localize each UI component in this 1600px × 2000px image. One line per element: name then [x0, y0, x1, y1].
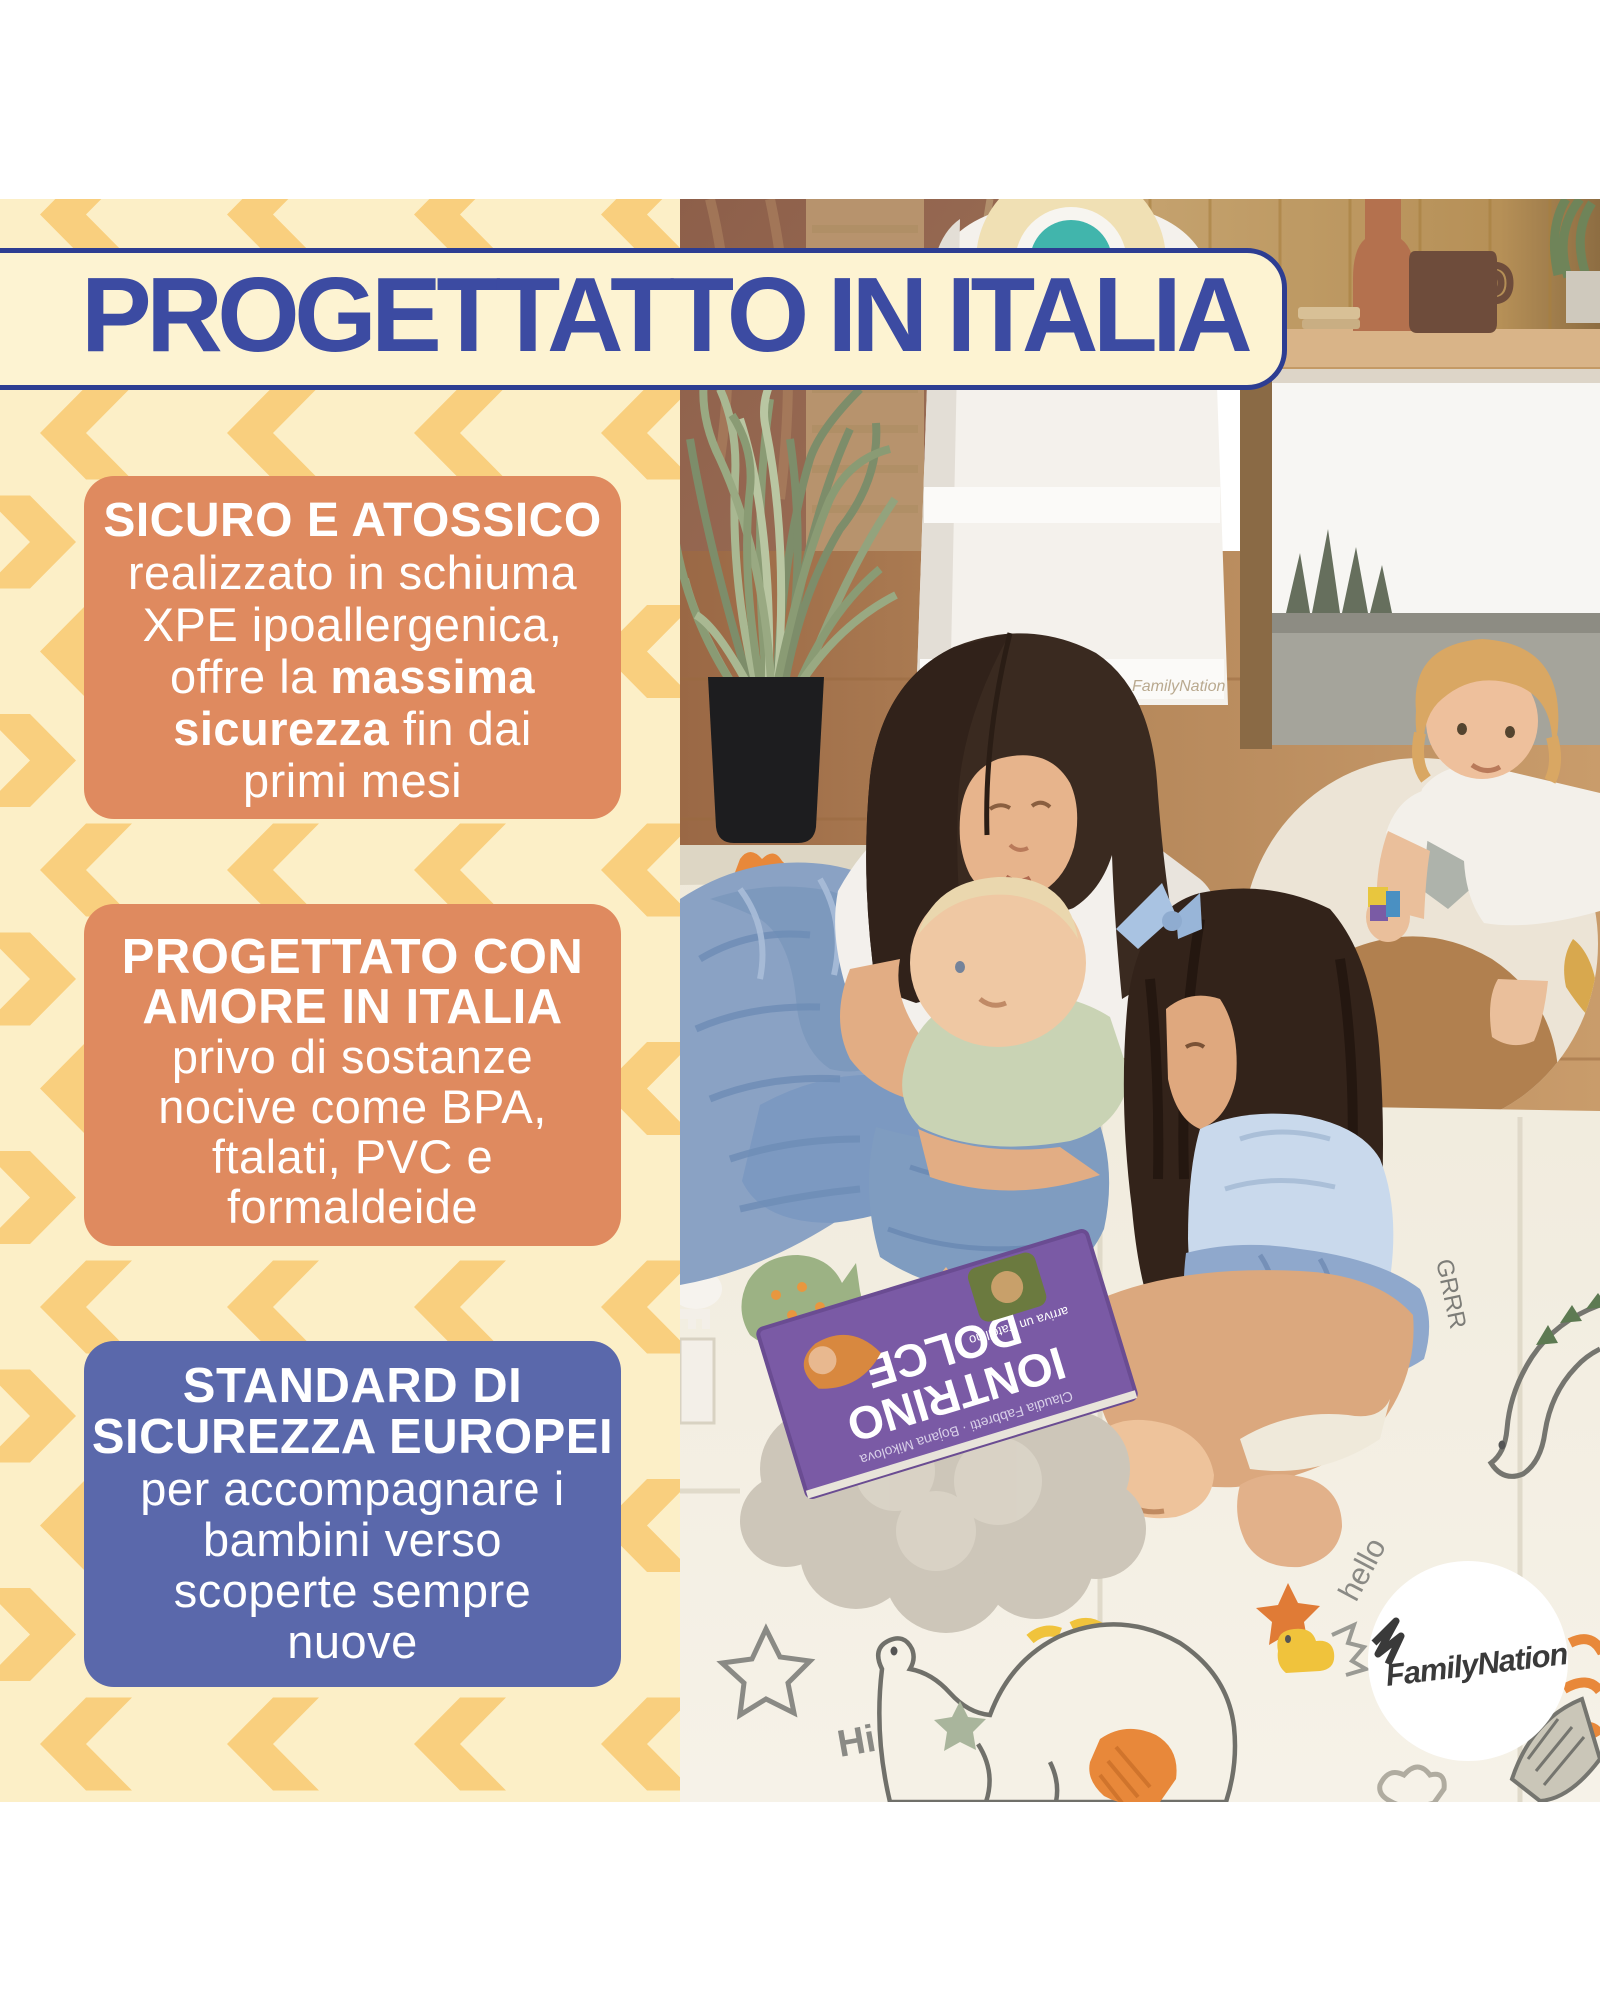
svg-text:Hi: Hi [834, 1718, 879, 1766]
svg-text:FamilyNation: FamilyNation [1132, 678, 1225, 695]
